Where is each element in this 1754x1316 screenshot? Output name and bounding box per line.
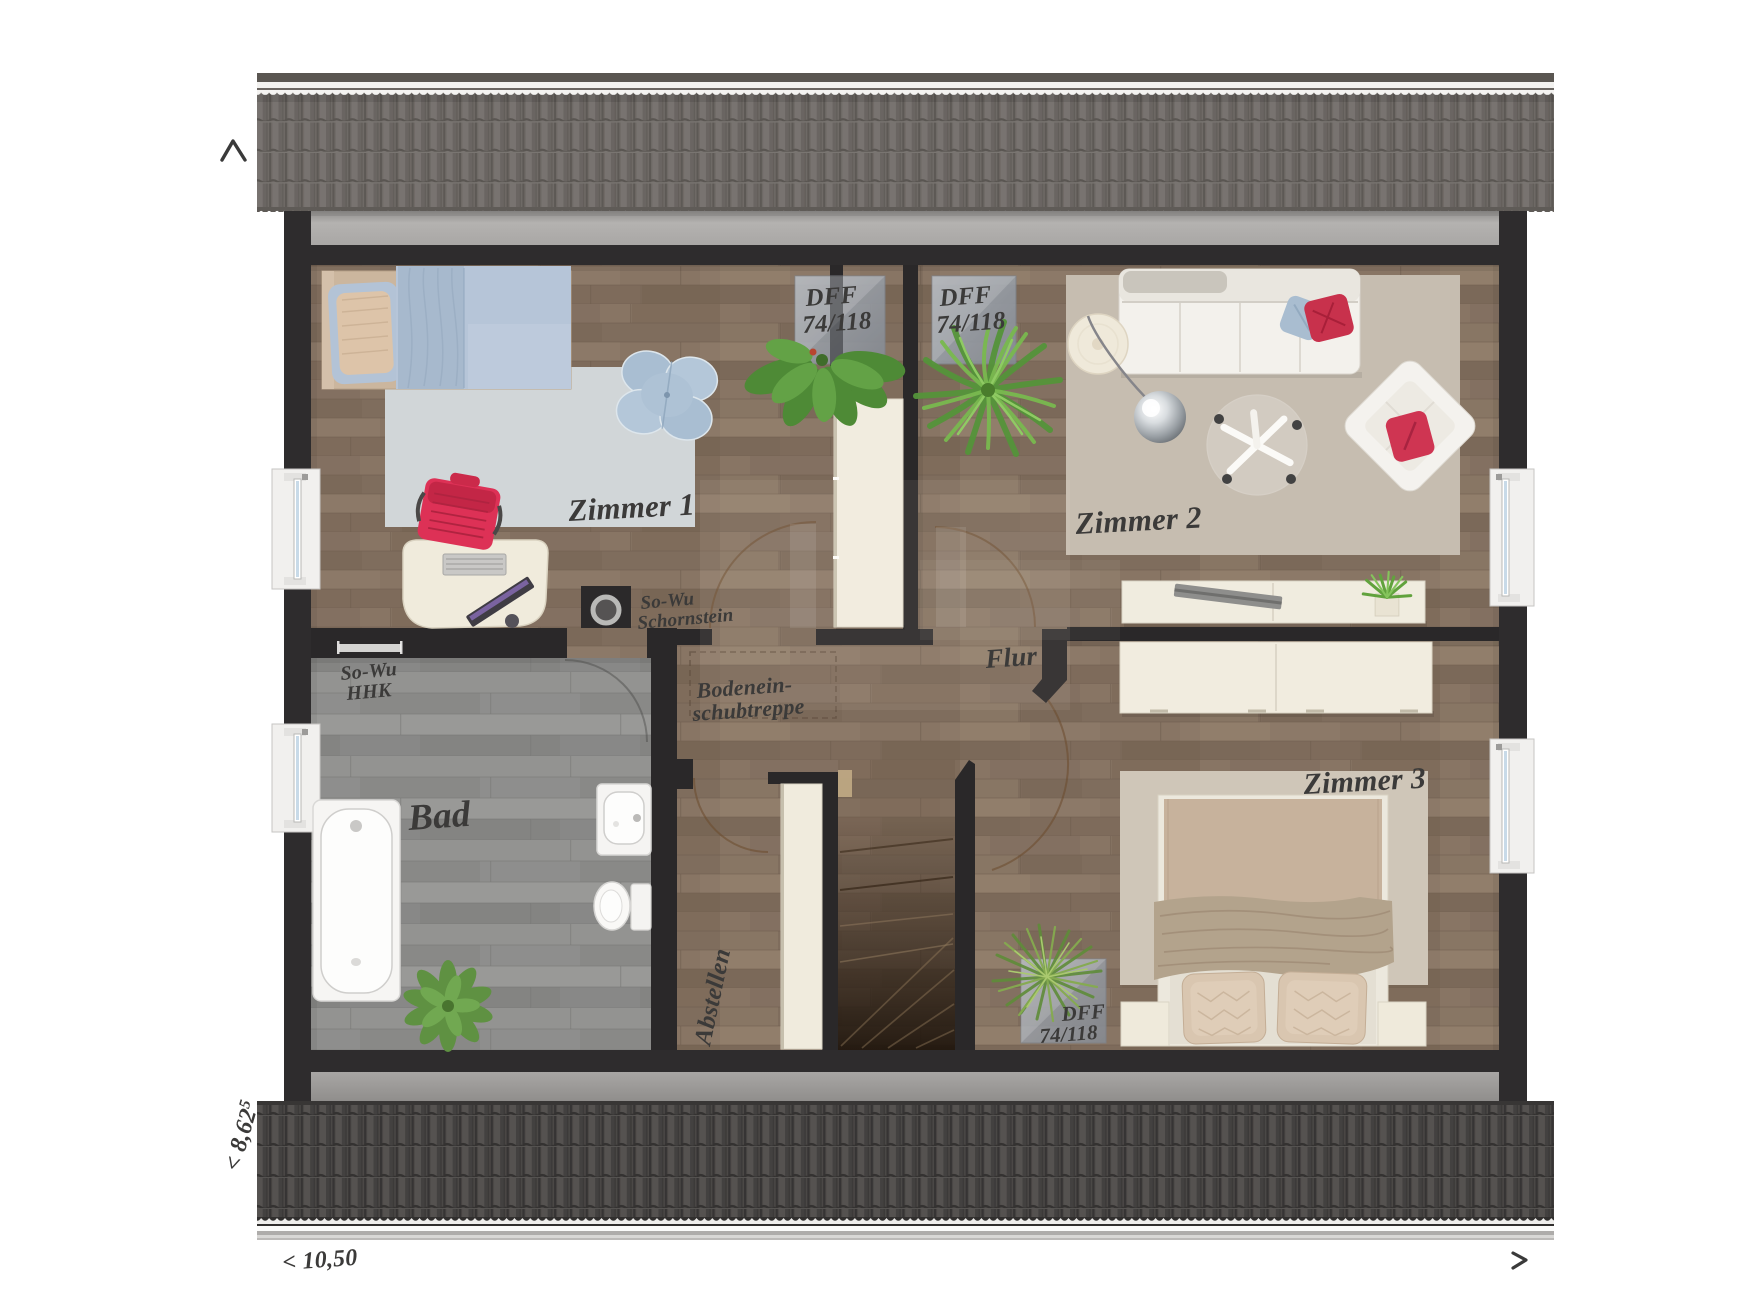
svg-text:< 10,50: < 10,50 [282,1245,359,1276]
svg-text:HHK: HHK [345,679,394,705]
svg-text:DFF: DFF [938,281,993,312]
svg-text:74/118: 74/118 [936,307,1007,339]
svg-text:74/118: 74/118 [802,307,873,339]
svg-text:Zimmer 2: Zimmer 2 [1074,499,1203,541]
svg-text:Bad: Bad [406,794,472,839]
svg-text:DFF: DFF [804,281,859,312]
svg-text:Zimmer 3: Zimmer 3 [1302,762,1427,801]
svg-text:Zimmer 1: Zimmer 1 [567,486,696,528]
svg-text:74/118: 74/118 [1039,1020,1099,1048]
svg-text:Flur: Flur [983,640,1038,674]
